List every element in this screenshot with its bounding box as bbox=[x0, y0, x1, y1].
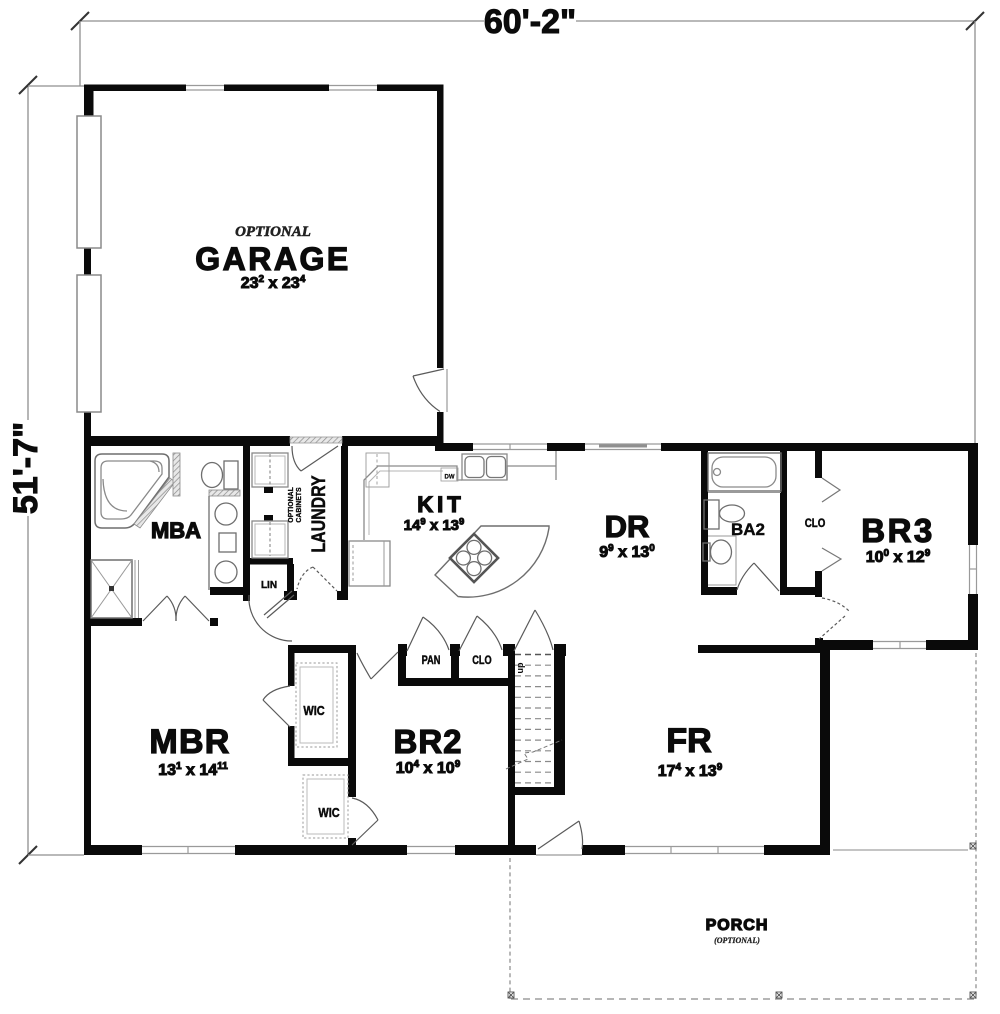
svg-text:(OPTIONAL): (OPTIONAL) bbox=[714, 936, 760, 945]
svg-text:104 x 109: 104 x 109 bbox=[396, 759, 461, 777]
svg-text:99 x 130: 99 x 130 bbox=[599, 543, 655, 561]
svg-text:PAN: PAN bbox=[422, 655, 441, 667]
svg-text:PORCH: PORCH bbox=[706, 917, 769, 934]
svg-text:GARAGE: GARAGE bbox=[195, 241, 350, 277]
svg-text:149 x 139: 149 x 139 bbox=[404, 517, 465, 535]
svg-text:BR3: BR3 bbox=[861, 512, 935, 549]
svg-text:MBA: MBA bbox=[151, 518, 201, 543]
svg-text:51'-7": 51'-7" bbox=[7, 422, 45, 514]
svg-text:174 x 139: 174 x 139 bbox=[658, 762, 723, 780]
svg-text:BR2: BR2 bbox=[393, 723, 462, 760]
svg-text:BA2: BA2 bbox=[731, 520, 765, 539]
svg-text:100 x 129: 100 x 129 bbox=[866, 548, 931, 566]
svg-text:WIC: WIC bbox=[303, 704, 325, 718]
svg-text:CLO: CLO bbox=[805, 517, 826, 530]
svg-text:up: up bbox=[515, 662, 525, 673]
svg-text:LAUNDRY: LAUNDRY bbox=[308, 475, 330, 553]
svg-text:FR: FR bbox=[666, 722, 711, 760]
svg-text:CABINETS: CABINETS bbox=[294, 487, 303, 522]
svg-text:DR: DR bbox=[605, 509, 650, 544]
svg-text:KIT: KIT bbox=[417, 492, 464, 517]
svg-text:DW: DW bbox=[445, 475, 455, 481]
svg-text:60'-2": 60'-2" bbox=[484, 3, 576, 41]
svg-text:MBR: MBR bbox=[149, 723, 230, 761]
svg-text:LIN: LIN bbox=[261, 580, 277, 591]
svg-text:WIC: WIC bbox=[318, 806, 340, 820]
svg-text:CLO: CLO bbox=[472, 655, 491, 667]
svg-text:OPTIONAL: OPTIONAL bbox=[235, 224, 311, 240]
svg-text:232 x 234: 232 x 234 bbox=[241, 274, 306, 292]
